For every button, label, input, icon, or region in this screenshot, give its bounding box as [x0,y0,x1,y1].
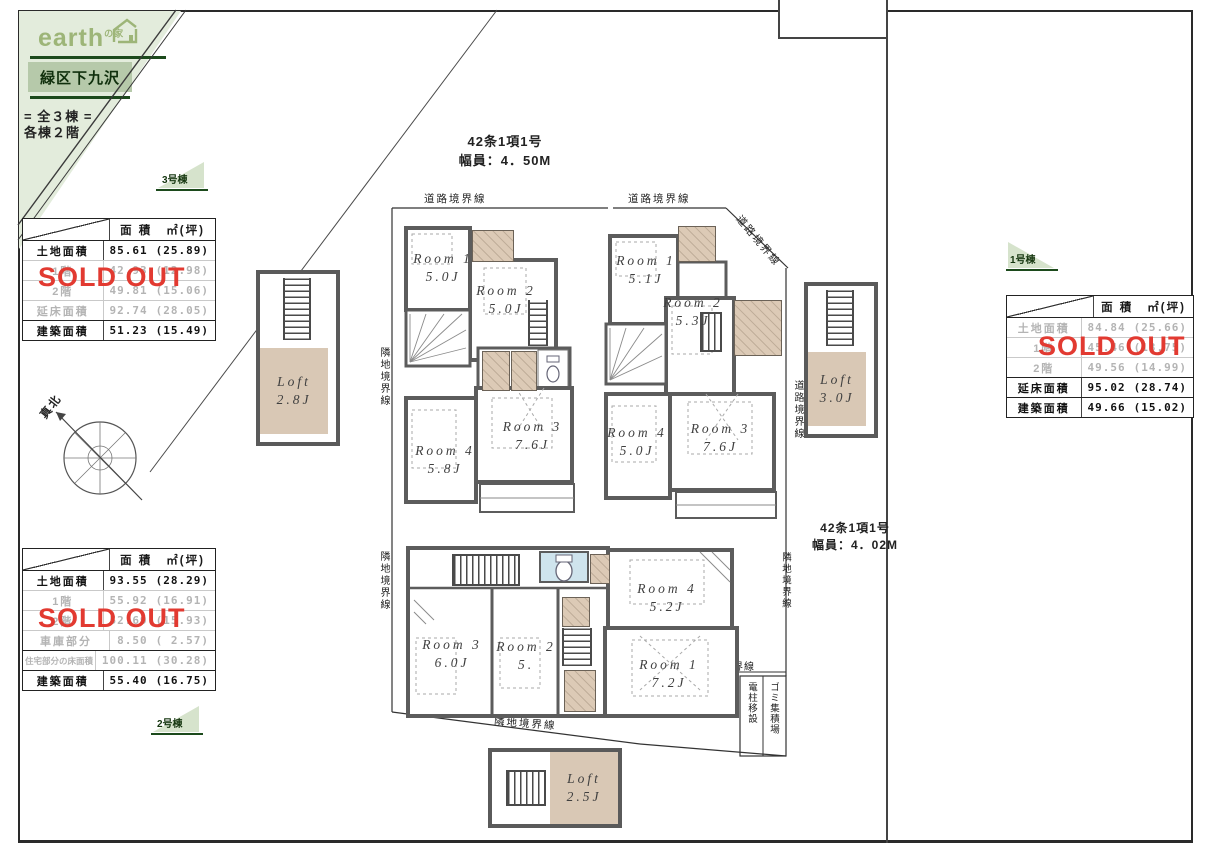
plan2-stair-mid [562,628,592,666]
plan1-loft-label: Loft3.0J [820,371,855,407]
plan1-loft: Loft3.0J [804,282,878,438]
plan1-room1-label: Room 15.1J [606,252,686,287]
table-row: 住宅部分の床面積100.11(30.28) [23,650,215,670]
sold-out-stamp-no1: SOLD OUT [1038,331,1186,362]
compass-icon [56,412,142,500]
area-table-no3-header: 面 積㎡(坪) [23,219,215,241]
plan2-loft-label: Loft2.5J [567,770,602,806]
plan3-room3-label: Room 37.6J [490,418,575,453]
area-table-no1-header: 面 積㎡(坪) [1007,296,1193,318]
sold-out-stamp-no3: SOLD OUT [38,262,186,293]
sold-out-stamp-no2: SOLD OUT [38,603,186,634]
plan3-room1-label: Room 15.0J [408,250,478,285]
plan2-loft-area: Loft2.5J [550,752,618,824]
table-row: 建築面積51.23(15.49) [23,320,215,340]
table-row: 土地面積93.55(28.29) [23,571,215,590]
table-corner-slash [1007,296,1094,317]
plan2-room3-label: Room 36.0J [412,636,492,671]
plan1-room4-label: Room 45.0J [598,424,676,459]
plan3-loft-label: Loft2.8J [277,373,312,409]
table-row: 建築面積55.40(16.75) [23,670,215,690]
table-row: 建築面積49.66(15.02) [1007,397,1193,417]
plan3-loft-area: Loft2.8J [260,348,328,434]
plan3-loft-stair [283,278,311,340]
table-row: 延床面積92.74(28.05) [23,300,215,320]
plan2-closet-top [590,554,610,584]
plan3-loft: Loft2.8J [256,270,340,446]
plan2-storage-mid [562,597,590,627]
plan2-room1-label: Room 17.2J [624,656,714,691]
plan3-storage-b [511,351,537,391]
plan2-storage-low [564,670,596,712]
table-row: 延床面積95.02(28.74) [1007,377,1193,397]
plan2-loft: Loft2.5J [488,748,622,828]
table-row: 土地面積85.61(25.89) [23,241,215,260]
plan3-room2-label: Room 25.0J [466,282,546,317]
plan1-room3-label: Room 37.6J [678,420,763,455]
plan3-room4-label: Room 45.8J [406,442,484,477]
plan1-loft-area: Loft3.0J [808,352,866,426]
plan1-loft-stair [826,290,854,346]
plan2-stair-main [452,554,520,586]
table-corner-slash [23,549,110,570]
plan3-storage-a [482,351,510,391]
site-plan-sheet: earthの家 緑区下九沢 = 全３棟 = 各棟２階 3号棟 2号棟 1号棟 真… [0,0,1211,857]
plan1-room2-label: Room 25.3J [652,294,734,329]
plan2-room4-label: Room 45.2J [622,580,712,615]
plan2-room2-label: Room 25. [490,638,562,673]
plan2-loft-stair [506,770,546,806]
plan3-closet [472,230,514,262]
plan1-storage [734,300,782,356]
area-table-no2-header: 面 積㎡(坪) [23,549,215,571]
table-corner-slash [23,219,110,240]
